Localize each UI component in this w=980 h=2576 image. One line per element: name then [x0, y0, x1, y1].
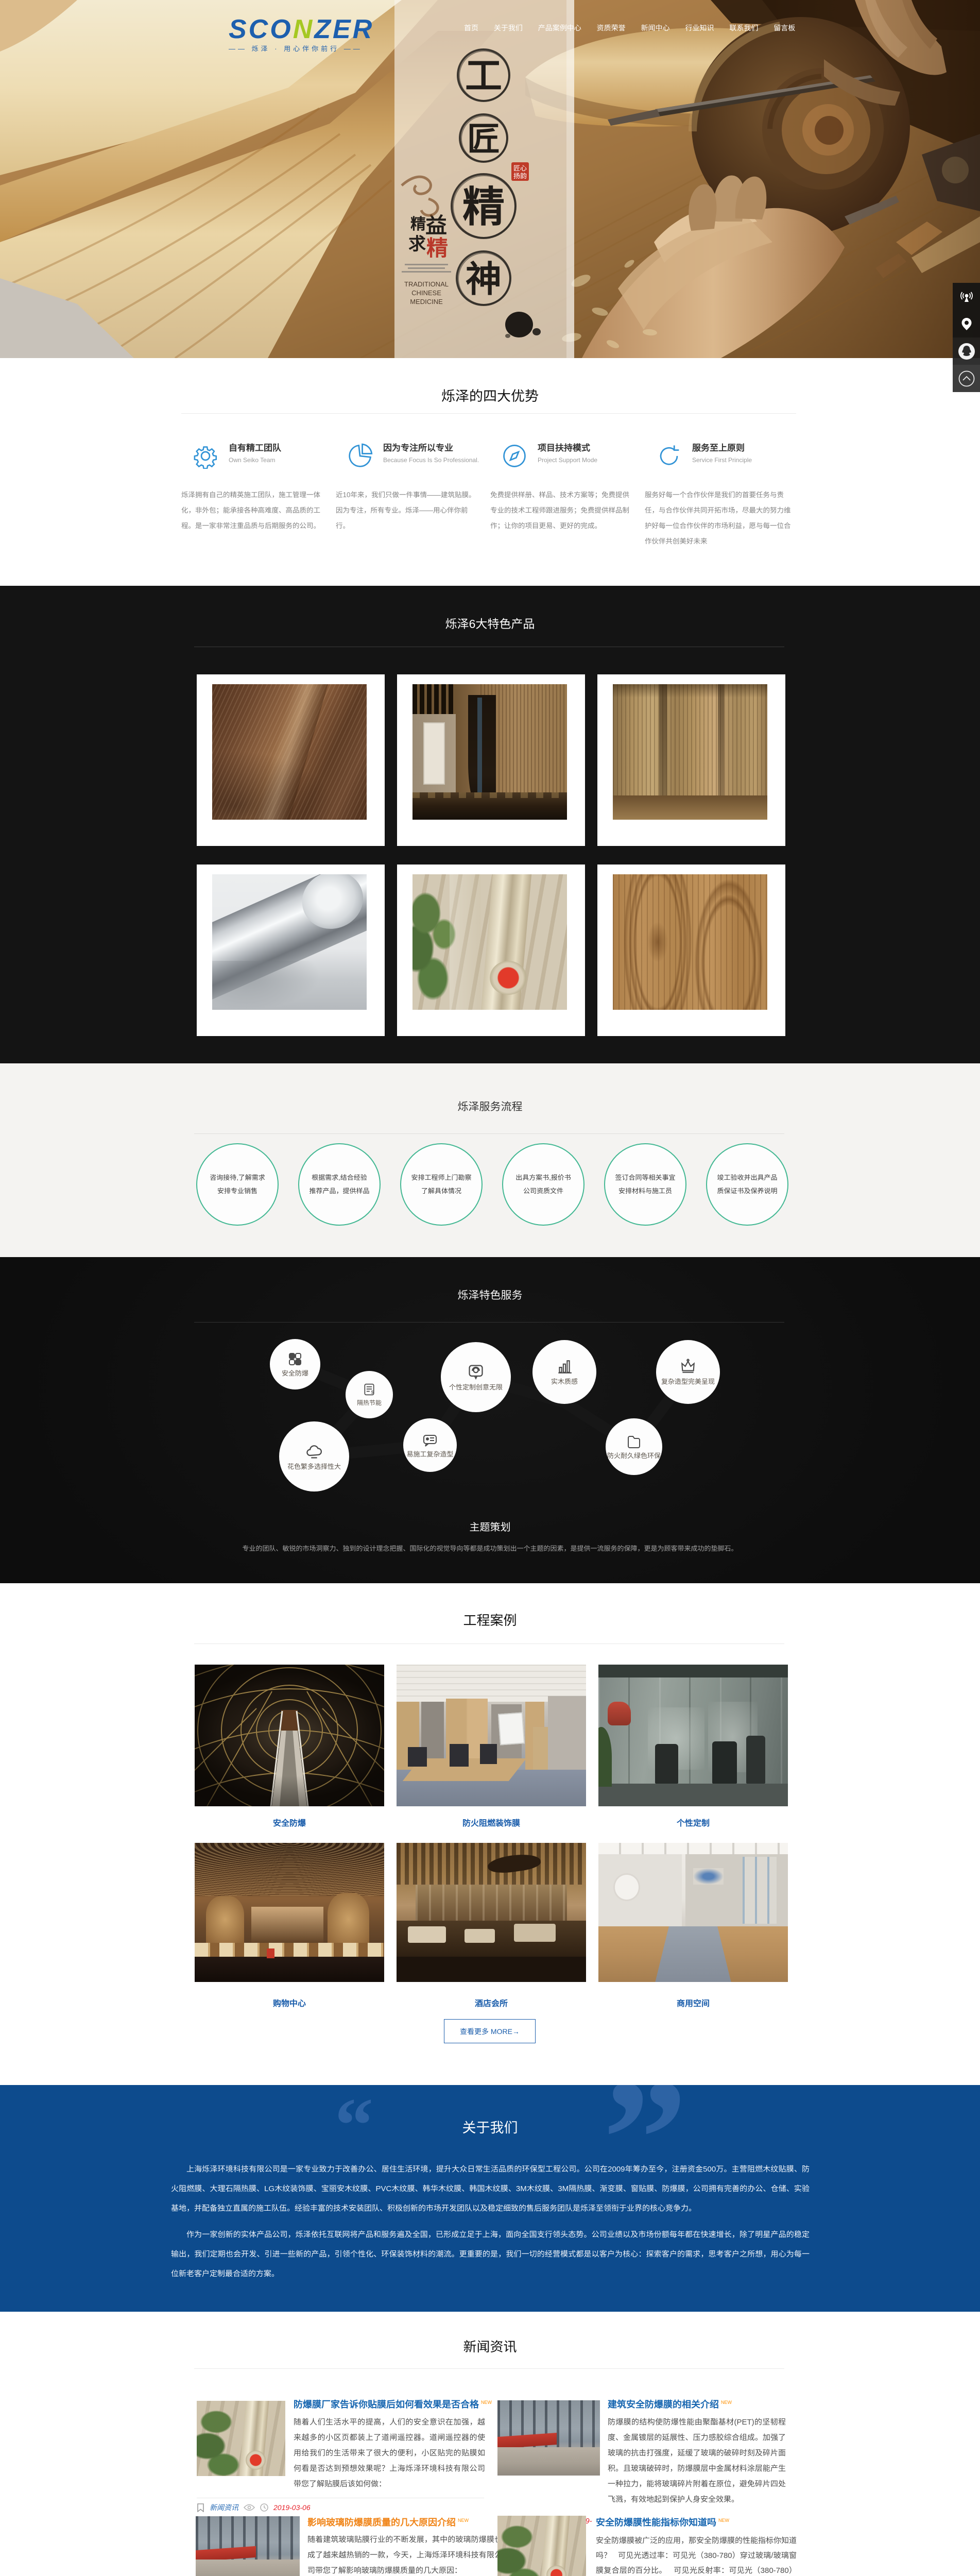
svg-text:TRADITIONAL: TRADITIONAL	[404, 280, 449, 288]
svg-text:CHINESE: CHINESE	[411, 289, 441, 297]
svg-text:MEDICINE: MEDICINE	[410, 298, 443, 306]
svg-text:精: 精	[410, 216, 426, 233]
svg-text:神: 神	[466, 259, 502, 299]
svg-text:精: 精	[462, 184, 505, 231]
svg-text:求: 求	[408, 234, 426, 254]
svg-text:扬韵: 扬韵	[513, 172, 527, 180]
svg-text:益: 益	[425, 213, 447, 238]
svg-text:匠心: 匠心	[513, 164, 527, 172]
svg-text:匠: 匠	[467, 121, 500, 158]
svg-text:$: $	[371, 1389, 373, 1394]
svg-text:精: 精	[426, 236, 448, 260]
svg-text:工: 工	[465, 56, 502, 97]
